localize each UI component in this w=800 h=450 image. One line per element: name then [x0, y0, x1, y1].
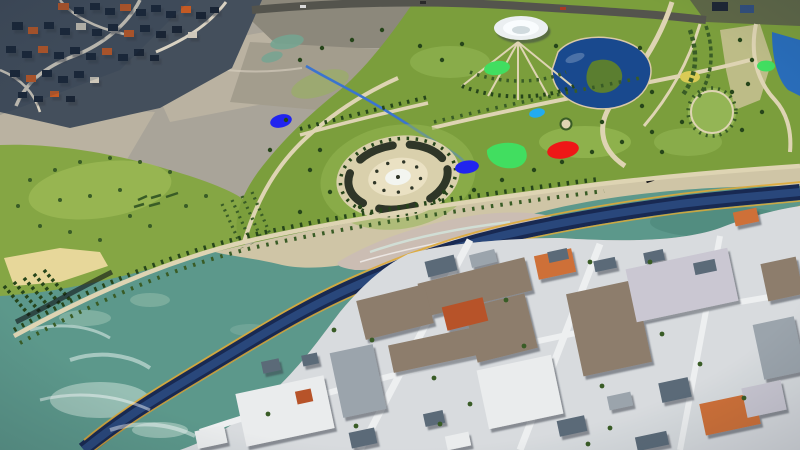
- screenshot-canvas: Riverfront park masterplan — aerial 3D r…: [0, 0, 800, 450]
- aerial-render: Riverfront park masterplan — aerial 3D r…: [0, 0, 800, 450]
- vignette: [0, 0, 800, 450]
